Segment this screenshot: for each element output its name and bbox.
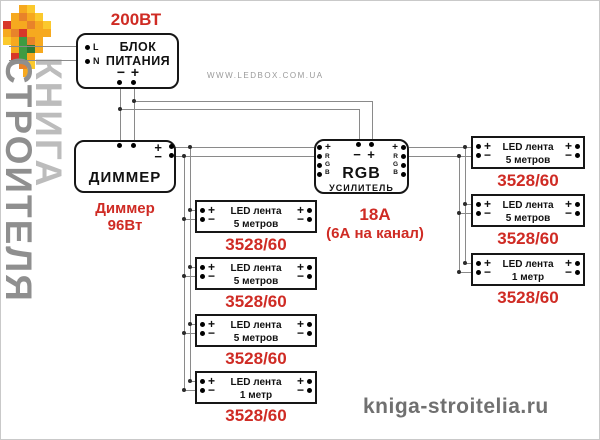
amp-title: RGB: [316, 165, 407, 183]
psu-minus-label: −: [114, 66, 128, 78]
strip-name: LED лента: [502, 259, 553, 270]
terminal-dot: [401, 154, 406, 159]
strip-minus-label: −: [208, 270, 215, 282]
terminal-dot: [117, 143, 122, 148]
strip-minus-label: −: [208, 384, 215, 396]
terminal-dot: [200, 388, 205, 393]
led-strip: + − LED лента 5 метров + −: [195, 314, 317, 347]
psu-power-label: 200ВТ: [96, 10, 176, 30]
led-strip: + − LED лента 1 метр + −: [471, 253, 585, 286]
wire-junction: [182, 331, 186, 335]
strip-text: LED лента 5 метров: [491, 199, 565, 225]
strip-name: LED лента: [230, 377, 281, 388]
terminal-dot: [307, 217, 312, 222]
strip-minus-label: −: [297, 270, 304, 282]
terminal-dot: [476, 270, 481, 275]
watermark-word-2: СТРОИТЕЛЯ: [3, 57, 33, 357]
dimmer-title: ДИММЕР: [76, 169, 174, 186]
terminal-l-label: L: [93, 41, 99, 53]
dimmer-minus-label: −: [154, 151, 162, 163]
wire-junction: [188, 379, 192, 383]
wire-junction: [182, 217, 186, 221]
strip-text: LED лента 1 метр: [491, 258, 565, 284]
strip-text: LED лента 5 метров: [215, 205, 297, 231]
wire: [409, 156, 479, 157]
strip-name: LED лента: [230, 206, 281, 217]
terminal-dot: [575, 270, 580, 275]
terminal-dot: [169, 144, 174, 149]
terminal-dot: [476, 144, 481, 149]
strip-model-label: 3528/60: [471, 229, 585, 249]
strip-name: LED лента: [502, 142, 553, 153]
strip-text: LED лента 1 метр: [215, 376, 297, 402]
amp-subtitle: УСИЛИТЕЛЬ: [316, 183, 407, 193]
kniga-site-watermark: kniga-stroitelia.ru: [363, 395, 549, 419]
terminal-dot: [575, 261, 580, 266]
strip-name: LED лента: [230, 320, 281, 331]
terminal-dot: [307, 388, 312, 393]
terminal-dot: [307, 265, 312, 270]
amp-caption-line2: (6А на канал): [326, 225, 424, 242]
strip-model-label: 3528/60: [471, 288, 585, 308]
terminal-dot: [476, 261, 481, 266]
wire-junction: [463, 145, 467, 149]
led-strip: + − LED лента 5 метров + −: [195, 200, 317, 233]
strip-model-label: 3528/60: [195, 349, 317, 369]
wire-junction: [132, 99, 136, 103]
strip-model-label: 3528/60: [195, 406, 317, 426]
wire: [172, 147, 314, 148]
dimmer-caption-line2: 96Вт: [108, 217, 143, 234]
psu-title-line1: БЛОК: [120, 40, 157, 54]
terminal-dot: [575, 211, 580, 216]
terminal-dot: [131, 80, 136, 85]
led-strip: + − LED лента 5 метров + −: [471, 194, 585, 227]
strip-text: LED лента 5 метров: [491, 141, 565, 167]
strip-length: 5 метров: [234, 219, 278, 230]
ledbox-site-watermark: WWW.LEDBOX.COM.UA: [207, 71, 324, 80]
amp-ch-plus-label: +: [325, 142, 331, 153]
amp-ch-plus-label: +: [392, 142, 398, 153]
strip-minus-label: −: [565, 266, 572, 278]
wire-junction: [188, 145, 192, 149]
terminal-dot: [169, 153, 174, 158]
wire-junction: [182, 274, 186, 278]
power-supply-box: L N БЛОК ПИТАНИЯ − +: [76, 33, 179, 89]
amp-caption: 18А (6А на канал): [296, 205, 454, 243]
terminal-dot: [476, 211, 481, 216]
wire: [134, 101, 372, 102]
terminal-dot: [85, 59, 90, 64]
strip-minus-label: −: [297, 327, 304, 339]
strip-length: 5 метров: [234, 333, 278, 344]
amp-ch-r-label: R: [325, 153, 330, 160]
watermark-text: КНИГА СТРОИТЕЛЯ: [3, 57, 63, 357]
terminal-dot: [117, 80, 122, 85]
wire: [134, 85, 135, 145]
terminal-dot: [307, 322, 312, 327]
amp-caption-line1: 18А: [359, 205, 390, 224]
strip-length: 1 метр: [512, 272, 544, 283]
terminal-dot: [575, 153, 580, 158]
terminal-dot: [307, 208, 312, 213]
terminal-dot: [317, 145, 322, 150]
strip-length: 1 метр: [240, 390, 272, 401]
terminal-dot: [307, 379, 312, 384]
terminal-dot: [307, 331, 312, 336]
strip-name: LED лента: [230, 263, 281, 274]
wire: [172, 156, 314, 157]
wire-junction: [118, 107, 122, 111]
terminal-dot: [200, 265, 205, 270]
psu-plus-label: +: [128, 66, 142, 78]
wire-junction: [457, 154, 461, 158]
terminal-dot: [200, 379, 205, 384]
wire-junction: [188, 265, 192, 269]
strip-minus-label: −: [208, 213, 215, 225]
terminal-dot: [200, 331, 205, 336]
wire: [372, 101, 373, 143]
led-strip: + − LED лента 1 метр + −: [195, 371, 317, 404]
wire-junction: [188, 322, 192, 326]
wire: [120, 85, 121, 145]
strip-length: 5 метров: [506, 155, 550, 166]
diagram-canvas: КНИГА СТРОИТЕЛЯ 200ВТ WWW.LEDBOX.COM.UA: [0, 0, 600, 440]
strip-text: LED лента 5 метров: [215, 262, 297, 288]
terminal-dot: [131, 143, 136, 148]
strip-model-label: 3528/60: [471, 171, 585, 191]
strip-minus-label: −: [208, 327, 215, 339]
wire-junction: [182, 154, 186, 158]
terminal-dot: [200, 217, 205, 222]
terminal-dot: [476, 153, 481, 158]
strip-minus-label: −: [297, 213, 304, 225]
terminal-n-label: N: [93, 55, 100, 67]
strip-minus-label: −: [565, 149, 572, 161]
terminal-dot: [401, 145, 406, 150]
strip-length: 5 метров: [234, 276, 278, 287]
amp-minus-label: −: [350, 149, 364, 161]
wire: [409, 147, 479, 148]
terminal-dot: [476, 202, 481, 207]
strip-length: 5 метров: [506, 213, 550, 224]
strip-minus-label: −: [565, 207, 572, 219]
led-strip: + − LED лента 5 метров + −: [471, 136, 585, 169]
strip-text: LED лента 5 метров: [215, 319, 297, 345]
led-strip: + − LED лента 5 метров + −: [195, 257, 317, 290]
dimmer-caption-line1: Диммер: [95, 200, 155, 217]
strip-minus-label: −: [484, 149, 491, 161]
wire-junction: [188, 208, 192, 212]
strip-minus-label: −: [297, 384, 304, 396]
dimmer-caption: Диммер 96Вт: [74, 200, 176, 234]
wire-junction: [182, 388, 186, 392]
wire-junction: [457, 270, 461, 274]
strip-model-label: 3528/60: [195, 292, 317, 312]
strip-minus-label: −: [484, 266, 491, 278]
terminal-dot: [575, 202, 580, 207]
dimmer-box: ДИММЕР + −: [74, 140, 176, 193]
terminal-dot: [317, 154, 322, 159]
wire: [359, 109, 360, 143]
rgb-amplifier-box: − + + R G B + R G B RGB УСИЛИТЕЛЬ: [314, 139, 409, 194]
terminal-dot: [200, 208, 205, 213]
amp-ch-r-label: R: [393, 153, 398, 160]
amp-plus-label: +: [364, 149, 378, 161]
wire-junction: [463, 202, 467, 206]
terminal-dot: [575, 144, 580, 149]
terminal-dot: [200, 322, 205, 327]
strip-minus-label: −: [484, 207, 491, 219]
wire-junction: [463, 261, 467, 265]
wire-junction: [457, 211, 461, 215]
strip-model-label: 3528/60: [195, 235, 317, 255]
strip-name: LED лента: [502, 200, 553, 211]
wire: [120, 109, 359, 110]
terminal-dot: [307, 274, 312, 279]
terminal-dot: [200, 274, 205, 279]
terminal-dot: [85, 45, 90, 50]
